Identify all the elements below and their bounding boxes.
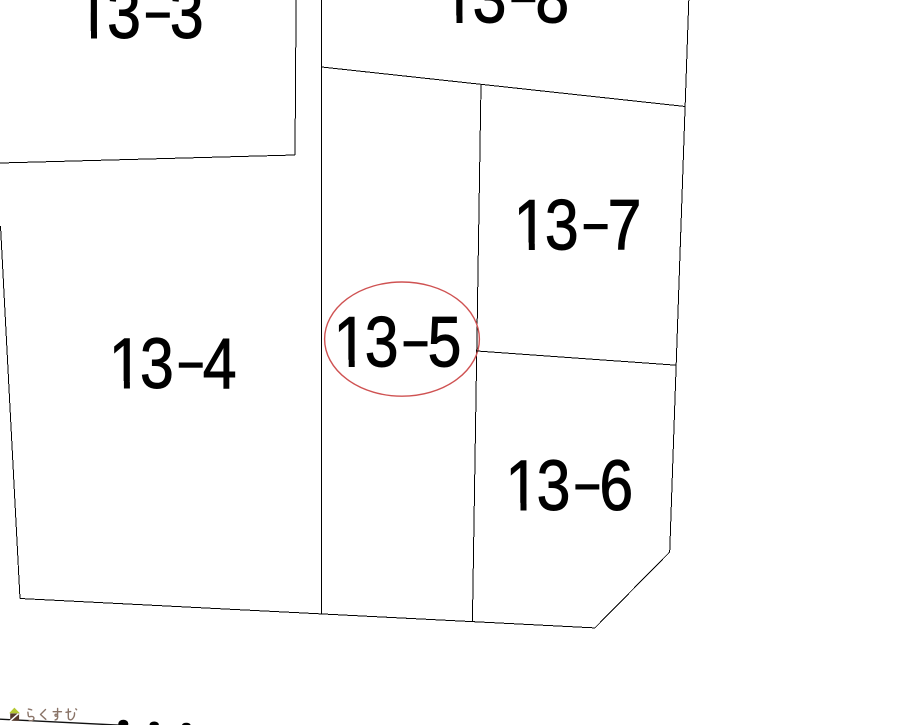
svg-text:13: 13 (514, 186, 576, 266)
svg-text:3: 3 (170, 0, 204, 54)
svg-text:4: 4 (203, 324, 237, 404)
svg-text:6: 6 (599, 446, 633, 526)
svg-text:13: 13 (334, 303, 396, 383)
svg-text:8: 8 (535, 0, 569, 39)
svg-text:5: 5 (428, 303, 462, 383)
svg-text:13: 13 (505, 446, 567, 526)
svg-text:7: 7 (608, 186, 642, 266)
svg-text:13: 13 (109, 324, 171, 404)
